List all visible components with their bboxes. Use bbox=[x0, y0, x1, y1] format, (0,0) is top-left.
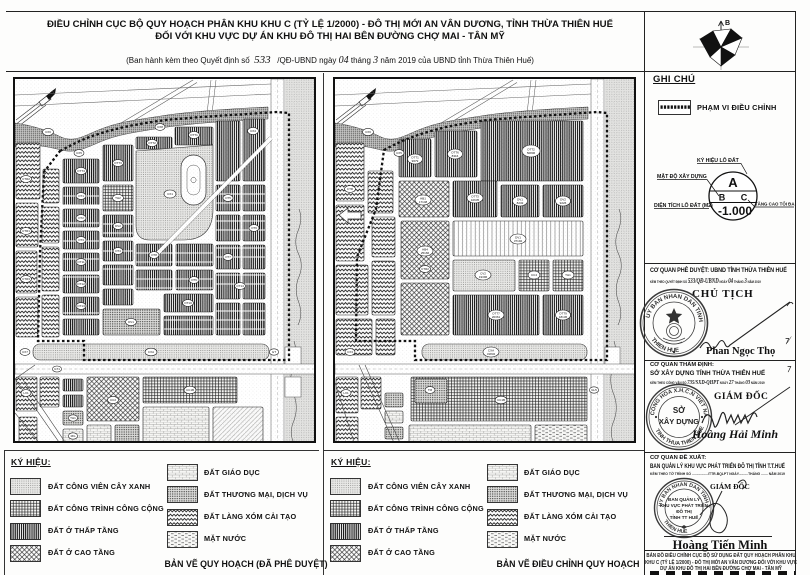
svg-text:OT6: OT6 bbox=[251, 226, 257, 230]
svg-text:A: A bbox=[728, 175, 738, 190]
svg-text:MG: MG bbox=[71, 434, 76, 438]
svg-text:TH1: TH1 bbox=[70, 416, 76, 420]
svg-text:OT8: OT8 bbox=[151, 253, 157, 257]
svg-text:CTR3: CTR3 bbox=[22, 277, 30, 281]
svg-text:37192: 37192 bbox=[514, 239, 523, 243]
svg-text:OT10: OT10 bbox=[184, 301, 192, 305]
svg-text:CC2: CC2 bbox=[110, 398, 116, 402]
svg-text:DV1: DV1 bbox=[128, 320, 134, 324]
svg-text:CX5: CX5 bbox=[396, 151, 402, 155]
svg-text:GL5: GL5 bbox=[591, 388, 597, 392]
svg-text:OT11: OT11 bbox=[77, 260, 85, 264]
svg-text:DIỆN TÍCH LÔ ĐẤT (M2): DIỆN TÍCH LÔ ĐẤT (M2) bbox=[654, 201, 713, 209]
svg-text:OTT1: OTT1 bbox=[190, 133, 198, 137]
svg-text:CC1B: CC1B bbox=[186, 388, 194, 392]
svg-text:CX6: CX6 bbox=[45, 130, 51, 134]
svg-text:OTT3: OTT3 bbox=[114, 161, 122, 165]
svg-text:LX1: LX1 bbox=[23, 391, 29, 395]
svg-text:OT9: OT9 bbox=[191, 278, 197, 282]
svg-text:CC1B: CC1B bbox=[497, 398, 505, 402]
svg-text:50806: 50806 bbox=[527, 151, 536, 155]
svg-text:TH1: TH1 bbox=[565, 273, 571, 277]
svg-text:KÝ HIỆU LÔ ĐẤT: KÝ HIỆU LÔ ĐẤT bbox=[697, 156, 740, 164]
svg-text:10635: 10635 bbox=[471, 198, 480, 202]
svg-text:CC4: CC4 bbox=[531, 273, 537, 277]
svg-text:19396: 19396 bbox=[479, 275, 488, 279]
svg-text:OT7: OT7 bbox=[225, 255, 231, 259]
svg-text:25166: 25166 bbox=[421, 251, 430, 255]
svg-text:CX6: CX6 bbox=[365, 130, 371, 134]
svg-text:B: B bbox=[719, 193, 726, 203]
svg-text:CX3: CX3 bbox=[347, 350, 353, 354]
svg-text:GT1: GT1 bbox=[54, 367, 60, 371]
svg-text:CXA: CXA bbox=[148, 350, 154, 354]
svg-text:CTR2: CTR2 bbox=[22, 177, 30, 181]
svg-text:OT12: OT12 bbox=[77, 282, 85, 286]
svg-text:20361: 20361 bbox=[492, 315, 501, 319]
svg-text:9226: 9226 bbox=[560, 201, 567, 205]
svg-text:9679: 9679 bbox=[412, 159, 419, 163]
svg-text:OTT4: OTT4 bbox=[77, 169, 85, 173]
svg-text:GT: GT bbox=[272, 350, 276, 354]
svg-text:CX7: CX7 bbox=[22, 350, 28, 354]
svg-text:C: C bbox=[741, 193, 748, 203]
svg-text:MẬT ĐỘ XÂY DỰNG: MẬT ĐỘ XÂY DỰNG bbox=[657, 172, 707, 180]
svg-text:CTR: CTR bbox=[347, 187, 354, 191]
svg-text:SỞ: SỞ bbox=[673, 406, 685, 415]
svg-text:CX4: CX4 bbox=[250, 129, 256, 133]
svg-text:OTT2: OTT2 bbox=[148, 141, 156, 145]
svg-text:CX5: CX5 bbox=[76, 151, 82, 155]
svg-text:CX8: CX8 bbox=[157, 125, 163, 129]
svg-text:8232: 8232 bbox=[517, 201, 524, 205]
svg-text:18136: 18136 bbox=[559, 315, 568, 319]
svg-text:B: B bbox=[725, 20, 730, 27]
svg-text:OT13: OT13 bbox=[77, 304, 85, 308]
svg-text:DV2: DV2 bbox=[115, 224, 121, 228]
svg-text:OT5: OT5 bbox=[225, 196, 231, 200]
svg-text:LX1: LX1 bbox=[343, 391, 349, 395]
svg-text:8316: 8316 bbox=[452, 154, 459, 158]
svg-text:OT1: OT1 bbox=[78, 194, 84, 198]
svg-text:OT4: OT4 bbox=[115, 249, 121, 253]
svg-text:OT14: OT14 bbox=[236, 284, 244, 288]
svg-text:TM: TM bbox=[428, 388, 433, 392]
svg-text:CX1: CX1 bbox=[167, 192, 173, 196]
svg-text:-1.000: -1.000 bbox=[718, 204, 752, 218]
svg-text:TH2: TH2 bbox=[115, 196, 121, 200]
svg-text:CTR1: CTR1 bbox=[22, 229, 30, 233]
svg-text:OT3: OT3 bbox=[78, 238, 84, 242]
svg-text:TẦNG CAO TỐI ĐA: TẦNG CAO TỐI ĐA bbox=[755, 202, 795, 207]
svg-text:CTR2: CTR2 bbox=[421, 267, 429, 271]
svg-text:OT2: OT2 bbox=[78, 216, 84, 220]
svg-text:17148: 17148 bbox=[419, 200, 428, 204]
svg-text:31832: 31832 bbox=[487, 352, 496, 356]
